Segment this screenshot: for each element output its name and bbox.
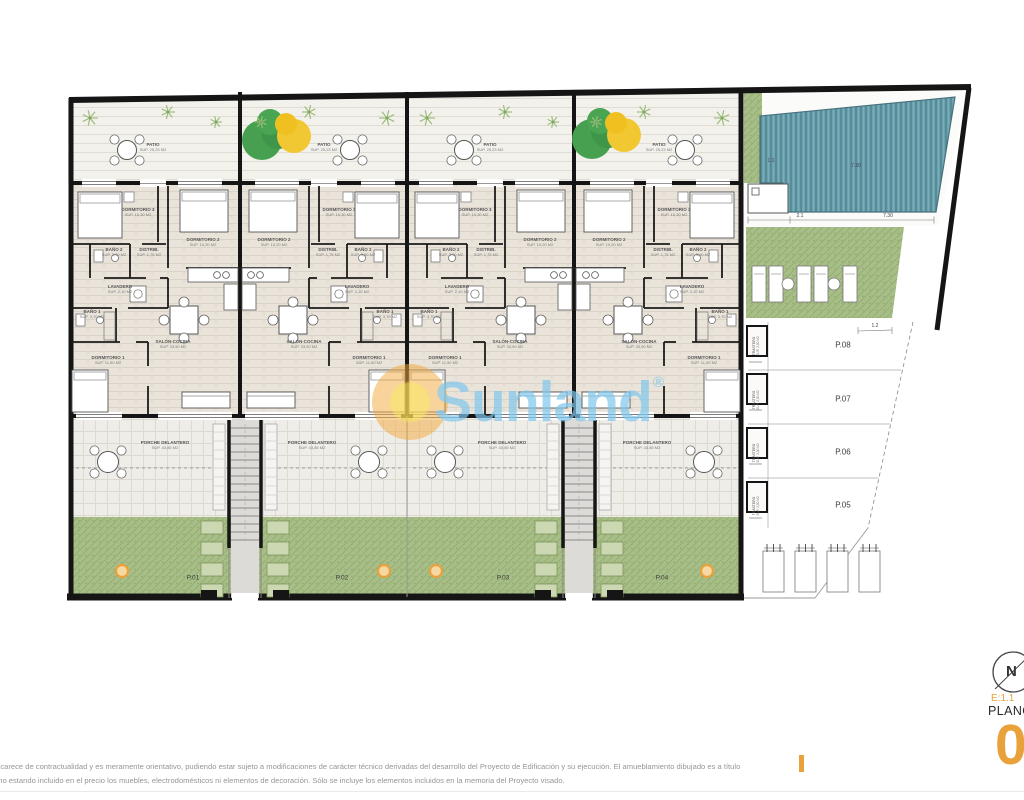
dimension-text: 2.1 <box>797 213 804 219</box>
porch-side-strip <box>213 424 225 510</box>
orange-shrub-icon <box>430 565 442 577</box>
drawing-scale: E:1.1 <box>991 693 1014 704</box>
dining-table <box>170 306 198 334</box>
nightstand <box>678 192 688 202</box>
bed-pillow <box>74 372 106 380</box>
palm-plant-icon <box>426 117 429 120</box>
sliding-door-opening <box>580 412 654 420</box>
window-opening <box>515 179 559 187</box>
nightstand <box>343 192 353 202</box>
window-opening <box>413 412 459 420</box>
wall-stub <box>535 590 551 598</box>
dining-table <box>507 306 535 334</box>
chair <box>668 135 677 144</box>
washbasin <box>359 255 366 262</box>
chair <box>686 469 695 478</box>
palm-plant-icon <box>260 121 263 124</box>
chair <box>110 156 119 165</box>
chair <box>454 446 463 455</box>
chair <box>117 446 126 455</box>
chair <box>378 469 387 478</box>
chair <box>623 297 633 307</box>
sliding-door-opening <box>495 412 569 420</box>
chair <box>199 315 209 325</box>
exterior-stall <box>763 551 784 592</box>
palm-plant-icon <box>167 111 170 114</box>
sun-lounger <box>752 266 766 302</box>
chair <box>351 469 360 478</box>
chair <box>447 135 456 144</box>
round-table <box>435 452 456 473</box>
washing-machine <box>467 286 483 302</box>
bed-pillow <box>706 372 738 380</box>
washing-machine <box>130 286 146 302</box>
trastero-room <box>747 374 767 404</box>
chair <box>378 446 387 455</box>
sun-lounger <box>769 266 783 302</box>
kitchen-counter-side <box>558 284 572 310</box>
round-table <box>341 141 360 160</box>
window-opening <box>696 179 730 187</box>
chair <box>268 315 278 325</box>
palm-plant-icon <box>552 121 555 124</box>
kitchen-counter <box>188 268 238 282</box>
round-table <box>359 452 380 473</box>
palm-plant-icon <box>89 117 92 120</box>
dining-table <box>279 306 307 334</box>
kitchen-counter <box>525 268 572 282</box>
toilet <box>709 250 718 262</box>
tree-canopy-yellow <box>605 112 627 134</box>
garden-planter <box>267 521 289 534</box>
trastero-room <box>747 326 767 356</box>
chair <box>110 135 119 144</box>
garden-planter <box>601 563 623 576</box>
lounge-side-table <box>828 278 840 290</box>
toilet <box>76 314 85 326</box>
floorplan-canvas: 7.301.12.17.301.2 PATIOSUP. 25,23 M2DORM… <box>0 0 1024 800</box>
legal-disclaimer: o carece de contractualidad y es meramen… <box>0 760 794 787</box>
chair <box>668 156 677 165</box>
toilet <box>374 250 383 262</box>
bed-pillow <box>182 192 226 201</box>
round-table <box>694 452 715 473</box>
sofa <box>519 392 567 408</box>
orange-shrub-icon <box>378 565 390 577</box>
toilet <box>94 250 103 262</box>
kitchen-counter <box>576 268 624 282</box>
kitchen-counter-side <box>242 284 256 310</box>
washbasin <box>374 317 381 324</box>
chair <box>308 315 318 325</box>
bed-pillow <box>417 194 457 203</box>
tree-canopy-yellow <box>275 113 297 135</box>
garden-planter <box>267 563 289 576</box>
toilet <box>431 250 440 262</box>
chair <box>603 315 613 325</box>
gate-opening <box>232 593 258 602</box>
pool-side-lawn <box>744 92 762 183</box>
garden-planter <box>535 563 557 576</box>
chair <box>643 315 653 325</box>
window-opening <box>590 179 634 187</box>
washbasin <box>449 255 456 262</box>
palm-plant-icon <box>721 117 724 120</box>
chair <box>351 446 360 455</box>
toilet <box>413 314 422 326</box>
front-garden-band <box>70 517 742 598</box>
nightstand <box>461 192 471 202</box>
disclaimer-line-1: o carece de contractualidad y es meramen… <box>0 760 794 774</box>
chair <box>693 156 702 165</box>
bed-pillow <box>251 192 295 201</box>
window-opening <box>690 412 736 420</box>
round-table <box>98 452 119 473</box>
chair <box>472 156 481 165</box>
sofa <box>582 392 630 408</box>
chair <box>159 315 169 325</box>
chair <box>358 135 367 144</box>
orange-tick-mark <box>799 755 804 772</box>
bed-pillow <box>586 192 630 201</box>
palm-plant-icon <box>595 121 598 124</box>
bed-pillow <box>80 194 120 203</box>
window-opening <box>255 179 299 187</box>
chair <box>472 135 481 144</box>
dining-table <box>614 306 642 334</box>
washbasin <box>709 317 716 324</box>
chair <box>179 333 189 343</box>
sliding-door-opening <box>245 412 319 420</box>
gate-opening <box>566 593 592 602</box>
palm-plant-icon <box>504 111 507 114</box>
porch-side-strip <box>547 424 559 510</box>
dimension-text: 7.30 <box>851 163 861 169</box>
palm-plant-icon <box>386 117 389 120</box>
bed-pillow <box>371 372 403 380</box>
bed-pillow <box>692 194 732 203</box>
chair <box>427 446 436 455</box>
wall-stub <box>273 590 289 598</box>
swimming-pool <box>760 97 955 212</box>
bed-pillow <box>411 372 443 380</box>
footer-divider <box>0 791 1024 792</box>
chair <box>135 156 144 165</box>
garden-planter <box>267 542 289 555</box>
chair <box>333 156 342 165</box>
window-opening <box>355 412 401 420</box>
washbasin <box>694 255 701 262</box>
sun-lounger <box>843 266 857 302</box>
washing-machine <box>331 286 347 302</box>
kitchen-counter <box>242 268 289 282</box>
trastero-room <box>747 482 767 512</box>
dimension-text: 1.2 <box>872 323 879 329</box>
sliding-door-opening <box>158 412 232 420</box>
sheet-number: 0 <box>995 712 1024 778</box>
chair <box>135 135 144 144</box>
toilet <box>727 314 736 326</box>
chair <box>516 297 526 307</box>
chair <box>179 297 189 307</box>
sofa <box>247 392 295 408</box>
chair <box>713 469 722 478</box>
lounge-side-table <box>782 278 794 290</box>
chair <box>686 446 695 455</box>
garden-planter <box>201 563 223 576</box>
garden-planter <box>535 521 557 534</box>
chair <box>288 333 298 343</box>
kitchen-counter-side <box>576 284 590 310</box>
chair <box>288 297 298 307</box>
chair <box>693 135 702 144</box>
chair <box>536 315 546 325</box>
nightstand <box>124 192 134 202</box>
chair <box>427 469 436 478</box>
chair <box>454 469 463 478</box>
palm-plant-icon <box>643 111 646 114</box>
palm-plant-icon <box>308 111 311 114</box>
orange-shrub-icon <box>701 565 713 577</box>
bed-pillow <box>357 194 397 203</box>
sun-lounger <box>797 266 811 302</box>
kitchen-counter-side <box>224 284 238 310</box>
chair <box>713 446 722 455</box>
washbasin <box>434 317 441 324</box>
window-opening <box>419 179 453 187</box>
chair <box>496 315 506 325</box>
round-table <box>676 141 695 160</box>
chair <box>90 469 99 478</box>
site-plan-drawing: 7.301.12.17.301.2 <box>0 0 1024 800</box>
garden-planter <box>201 542 223 555</box>
sun-lounger <box>814 266 828 302</box>
washbasin <box>97 317 104 324</box>
window-opening <box>178 179 222 187</box>
north-letter: N <box>1006 663 1017 680</box>
garden-planter <box>535 542 557 555</box>
chair <box>333 135 342 144</box>
bed-pillow <box>519 192 563 201</box>
round-table <box>118 141 137 160</box>
chair <box>90 446 99 455</box>
exterior-stall <box>827 551 848 592</box>
chair <box>117 469 126 478</box>
washing-machine <box>666 286 682 302</box>
toilet <box>392 314 401 326</box>
orange-shrub-icon <box>116 565 128 577</box>
porch-side-strip <box>265 424 277 510</box>
window-opening <box>76 412 122 420</box>
garden-planter <box>201 521 223 534</box>
chair <box>516 333 526 343</box>
exterior-stall <box>795 551 816 592</box>
trastero-room <box>747 428 767 458</box>
window-opening <box>361 179 395 187</box>
chair <box>623 333 633 343</box>
disclaimer-line-2: , no estando incluido en el precio los m… <box>0 774 794 788</box>
round-table <box>455 141 474 160</box>
exterior-stall <box>859 551 880 592</box>
wall-stub <box>607 590 623 598</box>
dimension-text: 7.30 <box>883 213 893 219</box>
chair <box>447 156 456 165</box>
porch-band <box>70 416 742 517</box>
porch-side-strip <box>599 424 611 510</box>
chair <box>358 156 367 165</box>
dimension-text: 1.1 <box>768 158 775 164</box>
palm-plant-icon <box>215 121 218 124</box>
wall-stub <box>201 590 217 598</box>
washbasin <box>112 255 119 262</box>
window-opening <box>82 179 116 187</box>
sofa <box>182 392 230 408</box>
garden-planter <box>601 521 623 534</box>
garden-planter <box>601 542 623 555</box>
